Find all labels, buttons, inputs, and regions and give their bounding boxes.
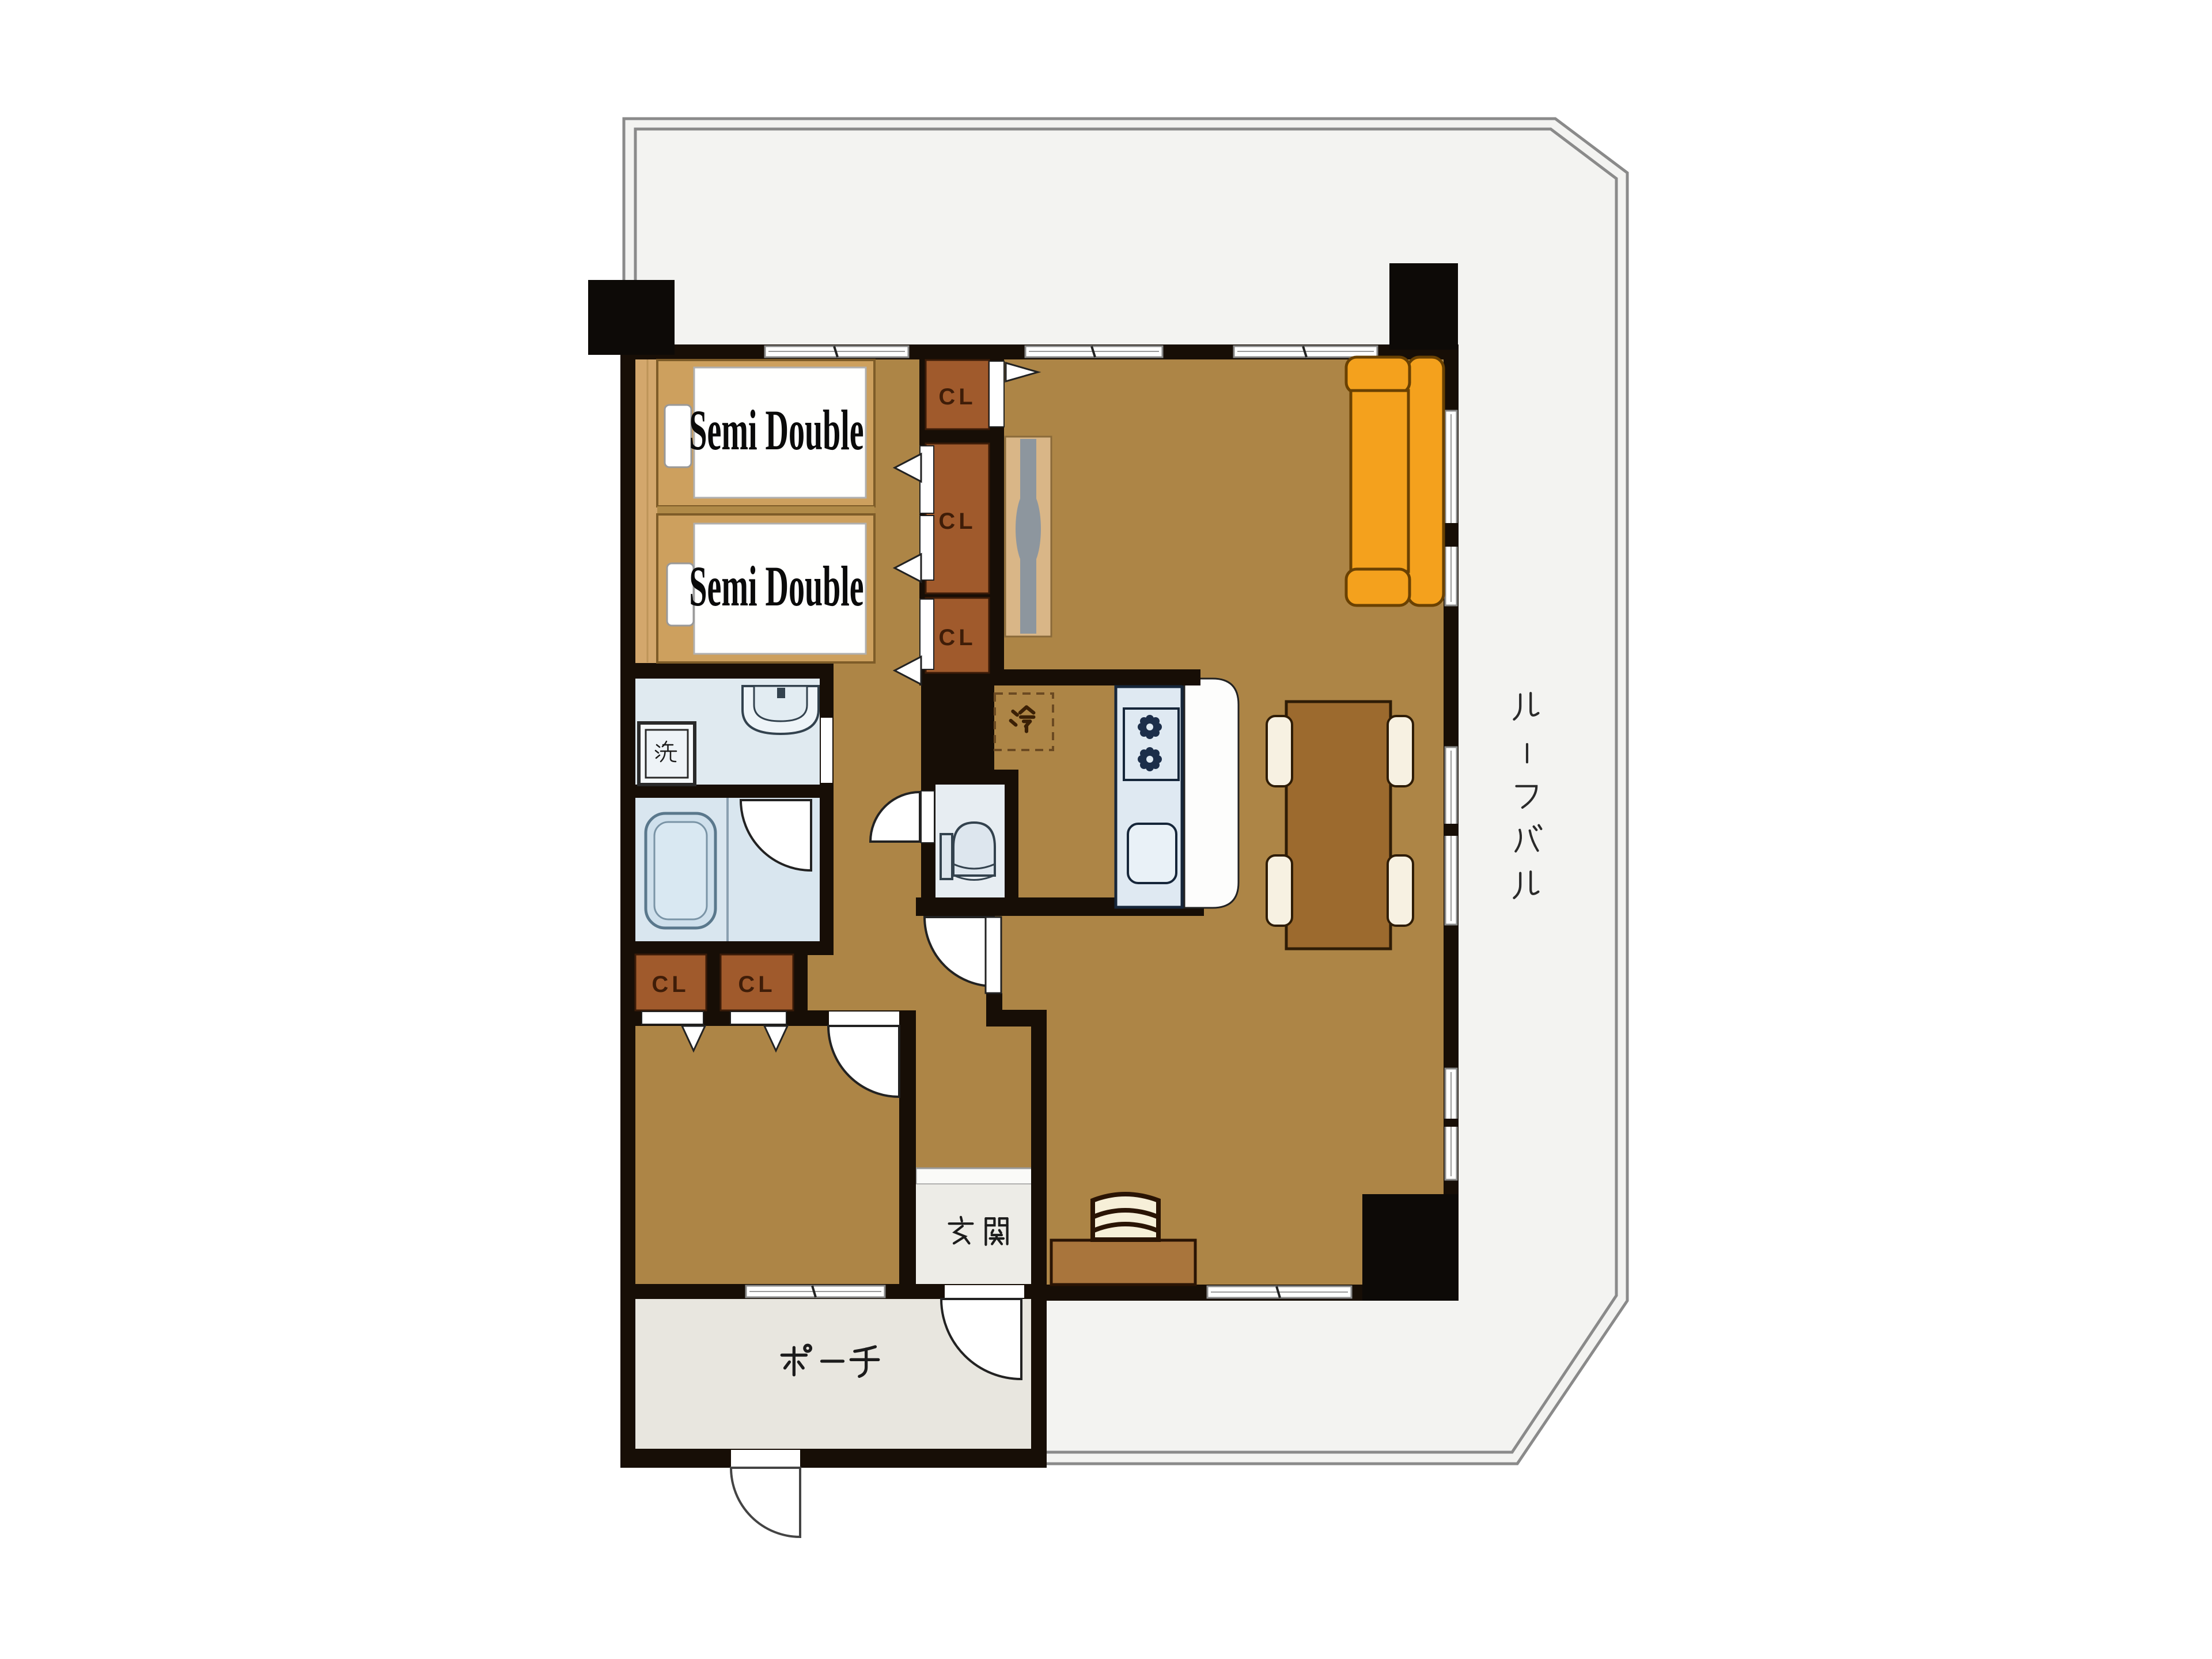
svg-text:CL: CL — [938, 384, 976, 410]
svg-text:CL: CL — [938, 509, 976, 534]
svg-text:CL: CL — [652, 972, 689, 997]
svg-text:Semi Double: Semi Double — [689, 398, 863, 462]
svg-text:CL: CL — [938, 625, 976, 650]
svg-text:CL: CL — [738, 972, 775, 997]
svg-text:Semi Double: Semi Double — [689, 554, 863, 618]
